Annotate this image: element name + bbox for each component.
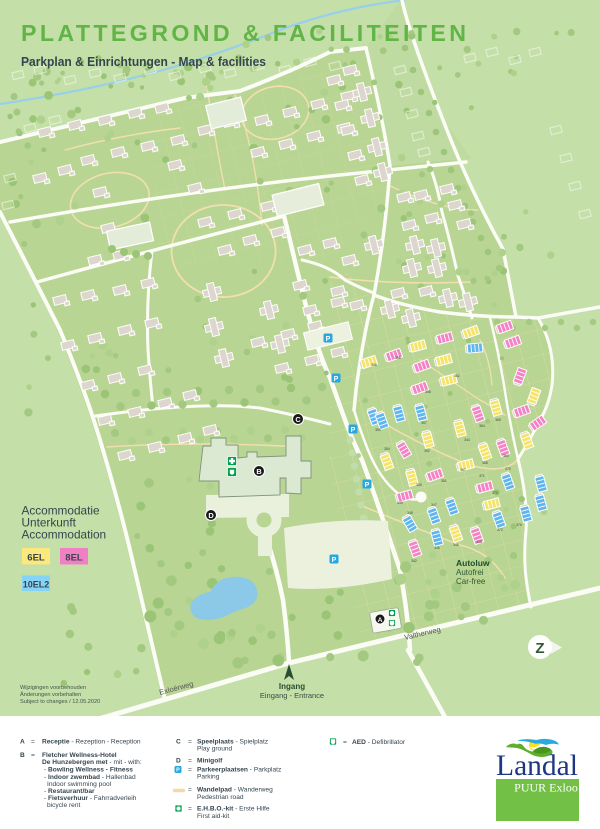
svg-text:Autoluw: Autoluw bbox=[456, 558, 490, 568]
svg-text:365: 365 bbox=[495, 418, 501, 422]
svg-text:350: 350 bbox=[416, 483, 422, 487]
svg-text:Wijzigingen voorbehouden: Wijzigingen voorbehouden bbox=[20, 685, 86, 691]
svg-text:354: 354 bbox=[384, 447, 390, 451]
svg-text:345: 345 bbox=[476, 540, 482, 544]
svg-text:348: 348 bbox=[407, 511, 413, 515]
svg-text:Play ground: Play ground bbox=[197, 746, 233, 753]
svg-text:Parking: Parking bbox=[197, 774, 220, 781]
svg-text:P: P bbox=[326, 336, 331, 343]
svg-text:355: 355 bbox=[375, 428, 381, 432]
svg-text:- Bowling Wellness - Fitness: - Bowling Wellness - Fitness bbox=[44, 767, 133, 774]
svg-text:De Hunzebergen met - mit - wit: De Hunzebergen met - mit - with: bbox=[42, 759, 142, 766]
svg-text:AED - Defibrillator: AED - Defibrillator bbox=[352, 739, 406, 746]
svg-text:- Indoor zwembad - Hallenbad: - Indoor zwembad - Hallenbad bbox=[44, 774, 136, 781]
svg-text:347: 347 bbox=[431, 503, 437, 507]
svg-text:C: C bbox=[295, 415, 301, 424]
svg-text:PUUR Exloo: PUUR Exloo bbox=[514, 781, 578, 795]
svg-text:- Fietsverhuur - Fahrradverlei: - Fietsverhuur - Fahrradverleih bbox=[44, 795, 137, 802]
svg-text:351: 351 bbox=[441, 479, 447, 483]
svg-text:=: = bbox=[188, 758, 192, 765]
svg-text:Speelplaats - Spielplatz: Speelplaats - Spielplatz bbox=[197, 739, 268, 746]
svg-text:=: = bbox=[188, 739, 192, 746]
svg-text:B: B bbox=[256, 467, 262, 476]
svg-text:345: 345 bbox=[434, 546, 440, 550]
svg-text:=: = bbox=[31, 752, 35, 759]
svg-text:PLATTEGROND & FACILITEITEN: PLATTEGROND & FACILITEITEN bbox=[21, 20, 466, 46]
svg-text:=: = bbox=[188, 806, 192, 813]
svg-text:D: D bbox=[208, 511, 214, 520]
svg-text:=: = bbox=[343, 739, 347, 746]
svg-text:Fletcher Wellness-Hotel: Fletcher Wellness-Hotel bbox=[42, 752, 117, 759]
svg-text:P: P bbox=[365, 482, 370, 489]
svg-text:Car-free: Car-free bbox=[456, 577, 486, 586]
svg-text:=: = bbox=[188, 767, 192, 774]
svg-text:Receptie - Rezeption - Recepti: Receptie - Rezeption - Reception bbox=[42, 739, 141, 746]
svg-text:Minigolf: Minigolf bbox=[197, 758, 223, 765]
svg-text:D: D bbox=[176, 758, 181, 765]
svg-text:P: P bbox=[332, 557, 337, 564]
svg-text:Eingang - Entrance: Eingang - Entrance bbox=[260, 691, 324, 700]
svg-text:A: A bbox=[378, 617, 383, 624]
svg-text:352: 352 bbox=[424, 449, 430, 453]
svg-text:Autofrei: Autofrei bbox=[456, 568, 484, 577]
svg-text:358: 358 bbox=[395, 356, 401, 360]
svg-text:373: 373 bbox=[492, 491, 498, 495]
svg-text:Z: Z bbox=[535, 640, 544, 657]
svg-text:Ingang: Ingang bbox=[279, 682, 305, 691]
svg-text:372: 372 bbox=[497, 528, 503, 532]
svg-text:364: 364 bbox=[479, 424, 485, 428]
svg-text:Landal: Landal bbox=[496, 750, 578, 782]
svg-text:- Restaurant/bar: - Restaurant/bar bbox=[44, 788, 95, 795]
svg-text:Subject to changes / 12.05.202: Subject to changes / 12.05.2020 bbox=[20, 699, 100, 705]
svg-text:6EL: 6EL bbox=[27, 553, 45, 564]
svg-text:E.H.B.O.-kit - Erste Hilfe: E.H.B.O.-kit - Erste Hilfe bbox=[197, 806, 270, 813]
svg-text:8EL: 8EL bbox=[65, 553, 83, 564]
svg-text:Wandelpad - Wanderweg: Wandelpad - Wanderweg bbox=[197, 787, 273, 794]
svg-text:P: P bbox=[176, 768, 180, 774]
svg-text:10EL2: 10EL2 bbox=[23, 580, 50, 590]
svg-text:346: 346 bbox=[453, 543, 459, 547]
svg-text:bicycle rent: bicycle rent bbox=[47, 802, 81, 809]
svg-text:376: 376 bbox=[516, 523, 522, 527]
svg-text:=: = bbox=[188, 787, 192, 794]
svg-text:360: 360 bbox=[503, 454, 509, 458]
svg-text:357: 357 bbox=[421, 421, 427, 425]
svg-text:367: 367 bbox=[460, 468, 466, 472]
svg-text:342: 342 bbox=[411, 559, 417, 563]
svg-text:A: A bbox=[20, 739, 25, 746]
svg-text:=: = bbox=[31, 739, 35, 746]
svg-text:Indoor swimming pool: Indoor swimming pool bbox=[47, 781, 112, 788]
svg-text:P: P bbox=[334, 376, 339, 383]
svg-text:356: 356 bbox=[371, 363, 377, 367]
svg-text:Parkplan & Einrichtungen - Map: Parkplan & Einrichtungen - Map & facilit… bbox=[21, 54, 266, 69]
svg-text:368: 368 bbox=[482, 461, 488, 465]
svg-text:370: 370 bbox=[505, 467, 511, 471]
svg-text:B: B bbox=[20, 752, 25, 759]
svg-text:Parkeerplaatsen - Parkplatz: Parkeerplaatsen - Parkplatz bbox=[197, 767, 281, 774]
svg-text:362: 362 bbox=[454, 374, 460, 378]
svg-text:Pedestrian road: Pedestrian road bbox=[197, 794, 244, 801]
svg-text:358: 358 bbox=[425, 390, 431, 394]
svg-text:349: 349 bbox=[397, 501, 403, 505]
svg-text:First aid-kit: First aid-kit bbox=[197, 813, 229, 820]
svg-text:371: 371 bbox=[479, 474, 485, 478]
svg-text:Änderungen vorbehalten: Änderungen vorbehalten bbox=[20, 691, 81, 698]
svg-text:C: C bbox=[176, 739, 181, 746]
svg-text:Accommodation: Accommodation bbox=[22, 528, 107, 542]
svg-text:344: 344 bbox=[464, 438, 470, 442]
svg-text:P: P bbox=[351, 427, 356, 434]
